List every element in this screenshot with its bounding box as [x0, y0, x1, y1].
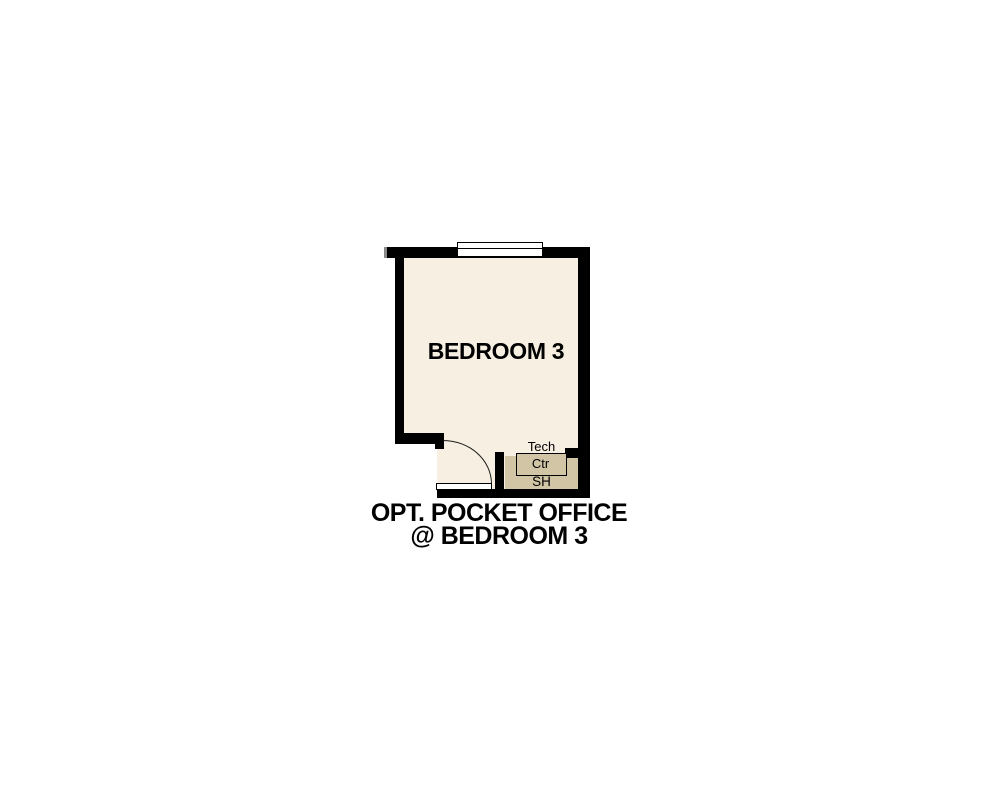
door-leaf-icon	[436, 483, 492, 490]
window-icon	[457, 242, 543, 257]
room-label: BEDROOM 3	[380, 340, 612, 363]
right-wall	[578, 247, 590, 498]
bottom-wall	[437, 489, 590, 498]
window-mullion-line	[458, 248, 542, 249]
caption-line-2: @ BEDROOM 3	[349, 525, 649, 548]
floor-plan-page: BEDROOM 3 Tech Ctr SH OPT. POCKET OFFICE…	[0, 0, 1000, 800]
plan-caption: OPT. POCKET OFFICE @ BEDROOM 3	[349, 502, 649, 547]
tech-label: Tech	[506, 440, 577, 453]
sh-label: SH	[505, 475, 578, 489]
ctr-label: Ctr	[516, 453, 565, 474]
top-wall-cut-mark	[384, 247, 387, 258]
